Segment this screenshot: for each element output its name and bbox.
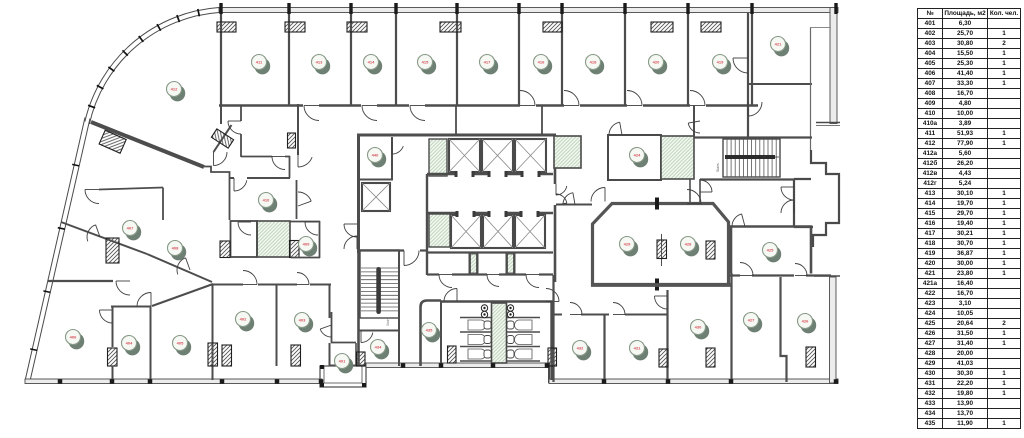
svg-text:403: 403 [299, 318, 306, 323]
svg-text:420: 420 [653, 60, 660, 65]
svg-text:Stairs: Stairs [716, 163, 720, 172]
svg-text:440: 440 [372, 153, 379, 158]
svg-text:416: 416 [538, 60, 545, 65]
svg-text:402: 402 [240, 317, 247, 322]
svg-text:406: 406 [70, 335, 77, 340]
svg-text:421: 421 [775, 42, 782, 47]
svg-text:407: 407 [127, 226, 134, 231]
svg-text:426: 426 [802, 319, 809, 324]
svg-text:435: 435 [426, 328, 433, 333]
svg-text:411: 411 [256, 60, 263, 65]
svg-text:409: 409 [303, 242, 310, 247]
svg-text:413: 413 [316, 60, 323, 65]
svg-text:404: 404 [126, 341, 133, 346]
svg-text:417: 417 [484, 60, 491, 65]
svg-text:427: 427 [748, 318, 755, 323]
svg-text:405: 405 [177, 341, 184, 346]
svg-text:Stairs: Stairs [386, 317, 390, 326]
svg-text:418: 418 [590, 60, 597, 65]
svg-text:419: 419 [717, 60, 724, 65]
svg-text:434: 434 [375, 345, 382, 350]
svg-text:431: 431 [634, 346, 641, 351]
svg-text:408: 408 [172, 246, 179, 251]
svg-text:412: 412 [171, 87, 178, 92]
svg-text:430: 430 [695, 325, 702, 330]
svg-text:432: 432 [577, 346, 584, 351]
svg-text:424: 424 [634, 153, 641, 158]
svg-text:410: 410 [263, 198, 270, 203]
svg-text:429: 429 [624, 242, 631, 247]
svg-text:414: 414 [368, 60, 375, 65]
svg-text:425: 425 [767, 248, 774, 253]
svg-text:401: 401 [339, 359, 346, 364]
svg-text:415: 415 [422, 60, 429, 65]
svg-text:428: 428 [685, 242, 692, 247]
